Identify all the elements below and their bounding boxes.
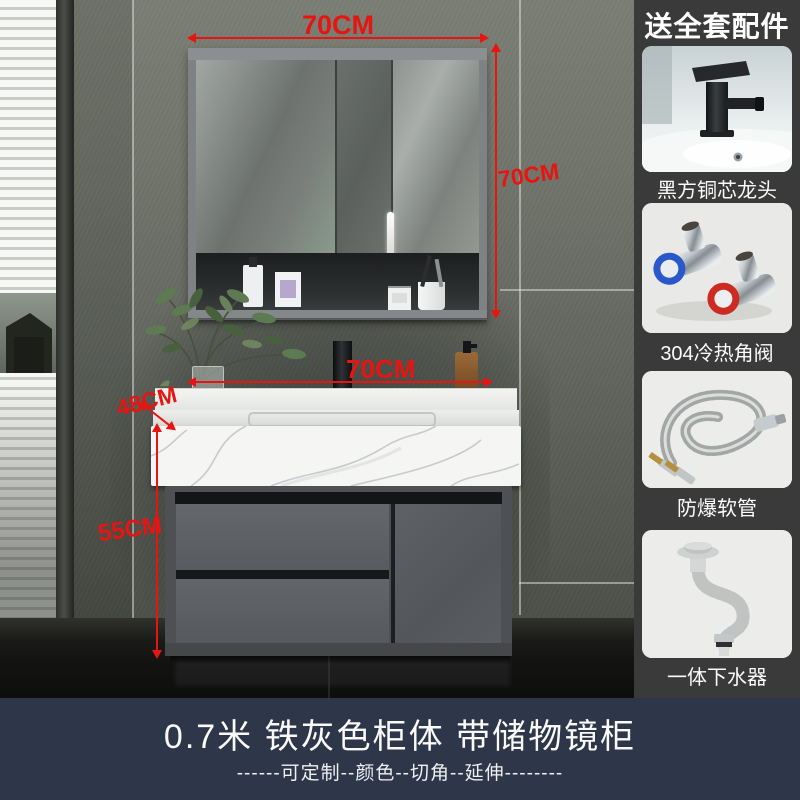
mirror-door-right — [393, 60, 479, 265]
arrowhead-left — [187, 33, 196, 43]
marble-counter-face — [151, 426, 521, 486]
dimension-mirror-height-label: 70CM — [496, 158, 561, 193]
mirror-door-middle — [337, 60, 391, 265]
accessory-label-hoses: 防爆软管 — [634, 492, 800, 521]
candle-jar-label — [392, 293, 407, 303]
accessory-card-faucet — [642, 46, 792, 172]
grout-line-horizontal-lower — [519, 582, 634, 584]
drawer-gap — [176, 570, 389, 579]
accessory-card-valves — [642, 203, 792, 333]
dimension-line — [156, 428, 158, 654]
soap-bottle-nozzle — [468, 344, 477, 348]
dimension-cabinet-height-label: 55CM — [96, 512, 163, 549]
cabinet-top-recess — [175, 492, 502, 504]
accessory-card-drain — [642, 530, 792, 658]
marble-veins — [151, 426, 521, 486]
window-frame — [56, 0, 74, 618]
arrowhead-right — [480, 33, 489, 43]
angle-valves-photo — [642, 203, 792, 333]
lotion-pump — [249, 257, 257, 267]
arrowhead-up — [491, 43, 501, 52]
blinds-shadow — [0, 380, 56, 618]
arrowhead-down — [152, 650, 162, 659]
bathroom-photo: 70CM 70CM 70CM 48CM — [0, 0, 634, 698]
dimension-mirror-width: 70CM — [188, 10, 488, 44]
accessory-label-valves: 304冷热角阀 — [634, 337, 800, 366]
customization-note: ------可定制--颜色--切角--延伸-------- — [0, 758, 800, 785]
dimension-line — [190, 381, 490, 383]
braided-hose-photo — [642, 371, 792, 488]
drawer-bottom — [176, 579, 389, 643]
mirror-door-handle — [387, 212, 394, 256]
dimension-cabinet-height: 55CM — [96, 424, 172, 660]
integrated-sink-outline — [248, 412, 436, 427]
mirror-divider-left — [335, 60, 337, 265]
window-view — [0, 293, 56, 373]
dimension-counter-width: 70CM — [188, 356, 492, 386]
arrowhead-up — [152, 423, 162, 432]
drawer-top — [176, 504, 389, 570]
mirror-cabinet-top-frame — [188, 48, 487, 60]
accessories-sidebar: 送全套配件 — [634, 0, 800, 698]
footer-band: 0.7米 铁灰色柜体 带储物镜柜 ------可定制--颜色--切角--延伸--… — [0, 698, 800, 800]
dimension-mirror-height: 70CM — [490, 44, 570, 318]
vanity-cabinet — [165, 486, 512, 656]
cabinet-door — [395, 504, 501, 643]
dimension-line — [495, 48, 497, 312]
accessory-card-hoses — [642, 371, 792, 488]
mirror-door-left — [196, 60, 335, 265]
house-silhouette — [0, 293, 56, 373]
product-poster: 70CM 70CM 70CM 48CM — [0, 0, 800, 800]
arrowhead-right — [484, 377, 493, 387]
black-square-faucet-photo — [642, 46, 792, 172]
product-title: 0.7米 铁灰色柜体 带储物镜柜 — [0, 709, 800, 758]
cabinet-bottom-frame — [165, 643, 512, 656]
counter-backsplash — [155, 388, 517, 411]
drain-pipe-photo — [642, 530, 792, 658]
dimension-line — [190, 37, 486, 39]
accessory-label-faucet: 黑方铜芯龙头 — [634, 174, 800, 203]
vanity-cabinet-shadow — [170, 656, 510, 664]
accessory-label-drain: 一体下水器 — [634, 661, 800, 690]
sidebar-header: 送全套配件 — [634, 5, 800, 45]
arrowhead-down — [491, 310, 501, 319]
